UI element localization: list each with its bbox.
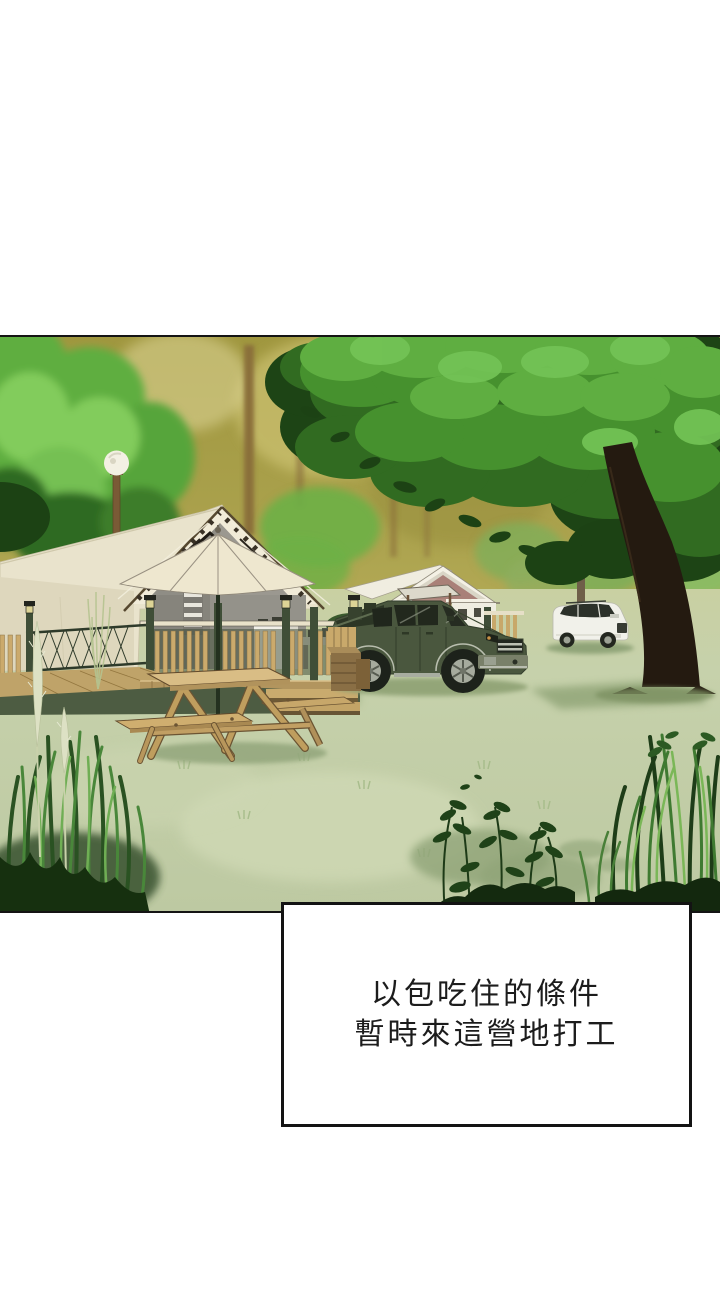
narration-box: 以包吃住的條件 暫時來這營地打工 bbox=[281, 902, 692, 1127]
white-suv bbox=[546, 601, 634, 654]
comic-page: 以包吃住的條件 暫時來這營地打工 bbox=[0, 0, 720, 1290]
narration-line-2: 暫時來這營地打工 bbox=[355, 1015, 619, 1055]
narration-line-1: 以包吃住的條件 bbox=[371, 975, 602, 1015]
campsite-panel bbox=[0, 335, 720, 913]
campsite-scene bbox=[0, 337, 720, 911]
